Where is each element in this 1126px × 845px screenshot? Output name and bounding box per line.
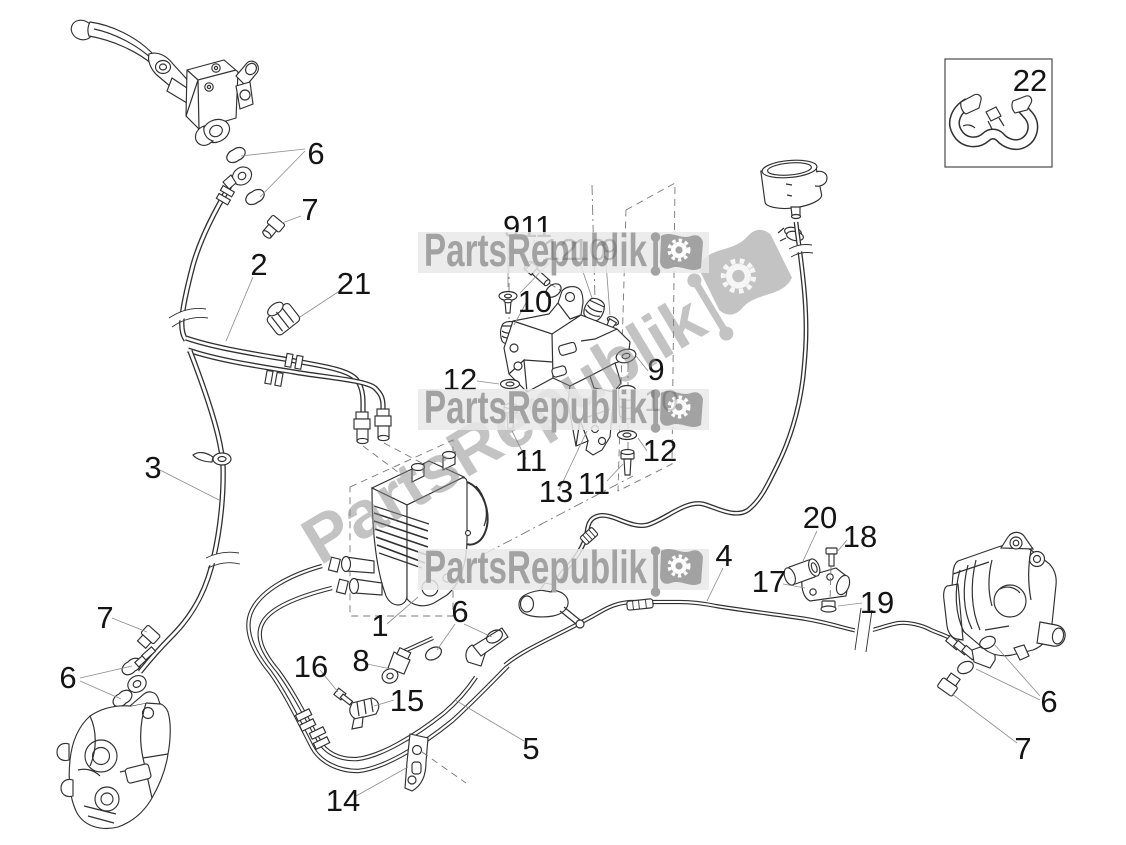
svg-text:19: 19: [860, 585, 894, 620]
svg-text:13: 13: [539, 474, 573, 509]
svg-text:6: 6: [1040, 684, 1057, 719]
svg-text:4: 4: [715, 538, 732, 573]
svg-text:14: 14: [326, 783, 360, 818]
svg-text:11: 11: [578, 466, 610, 501]
svg-text:6: 6: [307, 136, 324, 171]
svg-text:12: 12: [643, 433, 677, 468]
svg-text:20: 20: [803, 500, 837, 535]
svg-text:22: 22: [1013, 63, 1047, 98]
svg-text:7: 7: [96, 600, 113, 635]
svg-text:7: 7: [1014, 731, 1031, 766]
svg-text:2: 2: [250, 247, 267, 282]
svg-text:16: 16: [294, 649, 328, 684]
svg-text:10: 10: [518, 284, 552, 319]
svg-text:21: 21: [337, 266, 371, 301]
svg-text:9: 9: [601, 232, 618, 267]
svg-text:5: 5: [522, 731, 539, 766]
svg-text:3: 3: [144, 450, 161, 485]
svg-text:PartsRepublik: PartsRepublik: [424, 541, 647, 593]
svg-text:15: 15: [390, 683, 424, 718]
svg-text:10: 10: [644, 383, 678, 418]
svg-text:6: 6: [59, 660, 76, 695]
svg-text:1: 1: [371, 608, 388, 643]
svg-text:PartsRepublik: PartsRepublik: [424, 381, 647, 433]
svg-text:17: 17: [752, 564, 786, 599]
svg-text:6: 6: [451, 594, 468, 629]
svg-text:7: 7: [301, 192, 318, 227]
svg-text:8: 8: [352, 643, 369, 678]
svg-text:18: 18: [843, 519, 877, 554]
